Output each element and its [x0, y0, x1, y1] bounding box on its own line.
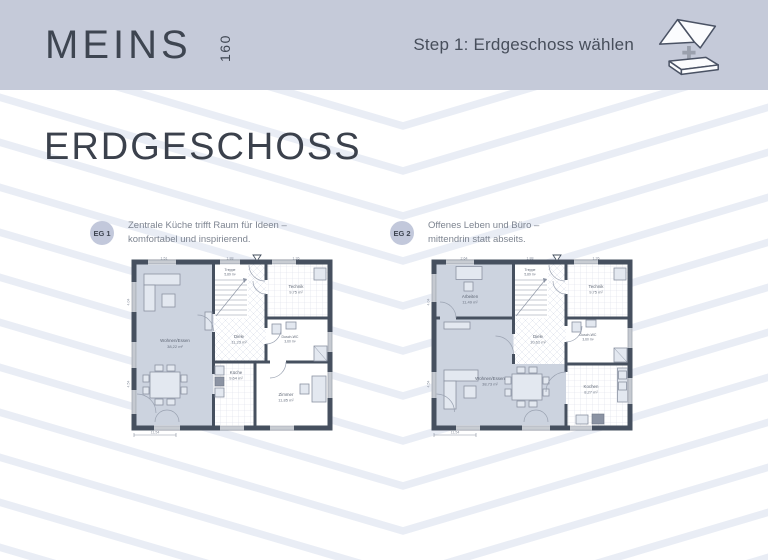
eg1-description: Zentrale Küche trifft Raum für Ideen –ko… [128, 219, 287, 248]
window-opening [154, 425, 180, 430]
eg2-floorplan[interactable]: Arbeiten 11,49 m² Treppe 5,89 m² Technik… [424, 254, 640, 442]
window-opening [220, 425, 244, 430]
svg-text:5,89 m²: 5,89 m² [524, 272, 536, 276]
window-opening [432, 372, 437, 398]
svg-text:4,04: 4,04 [127, 298, 131, 305]
window-opening [132, 390, 137, 414]
window-opening [132, 282, 137, 312]
svg-text:Diele: Diele [533, 334, 544, 339]
window-opening [328, 372, 333, 398]
svg-text:5,89 m²: 5,89 m² [224, 272, 236, 276]
svg-text:38,22 m²: 38,22 m² [167, 344, 183, 349]
eg2-badge: EG 2 [390, 221, 414, 245]
svg-text:11,23 m²: 11,23 m² [231, 339, 247, 344]
svg-text:11,85 m²: 11,85 m² [278, 397, 294, 402]
window-opening [132, 342, 137, 368]
svg-text:9,75 m²: 9,75 m² [589, 289, 603, 294]
window-opening [628, 328, 633, 348]
svg-text:Dusch-WC: Dusch-WC [282, 335, 299, 339]
svg-text:Küche: Küche [230, 370, 243, 375]
window-opening [570, 425, 592, 430]
floorplan-option-eg2[interactable]: EG 2 Offenes Leben und Büro –mittendrin … [390, 219, 690, 442]
svg-text:9,64 m²: 9,64 m² [229, 375, 243, 380]
svg-text:Treppe: Treppe [525, 268, 536, 272]
window-opening [432, 274, 437, 302]
window-opening [148, 259, 176, 264]
floorplan-options: EG 1 Zentrale Küche trifft Raum für Idee… [0, 219, 768, 442]
svg-text:Zimmer: Zimmer [279, 392, 294, 397]
window-opening [270, 425, 294, 430]
window-opening [456, 425, 480, 430]
svg-text:4,54: 4,54 [127, 380, 131, 387]
window-opening [628, 378, 633, 404]
svg-text:Technik: Technik [589, 284, 605, 289]
content-area: ERDGESCHOSS EG 1 Zentrale Küche trifft R… [0, 90, 768, 560]
eg1-floorplan[interactable]: Wohnen/Essen 38,22 m² Treppe 5,89 m² Tec… [124, 254, 340, 442]
window-opening [574, 259, 598, 264]
app-header: MEINS 160 Step 1: Erdgeschoss wählen [0, 0, 768, 90]
svg-text:Wohnen/Essen: Wohnen/Essen [160, 338, 190, 343]
house-add-floor-icon [654, 13, 722, 77]
svg-text:8,27 m²: 8,27 m² [584, 389, 598, 394]
svg-text:1,88: 1,88 [527, 256, 534, 260]
window-opening [446, 259, 474, 264]
eg2-description: Offenes Leben und Büro –mittendrin statt… [428, 219, 539, 248]
eg1-badge: EG 1 [90, 221, 114, 245]
svg-text:10,61 m²: 10,61 m² [530, 339, 546, 344]
svg-text:Kochen: Kochen [584, 384, 599, 389]
svg-text:4,04: 4,04 [427, 298, 431, 305]
svg-text:Arbeiten: Arbeiten [462, 294, 479, 299]
svg-text:11,49 m²: 11,49 m² [462, 299, 478, 304]
svg-text:3,60 m²: 3,60 m² [582, 337, 594, 341]
svg-text:11,54: 11,54 [151, 430, 160, 434]
window-opening [272, 259, 296, 264]
brand-name: MEINS [45, 23, 192, 68]
svg-text:9,75 m²: 9,75 m² [289, 289, 303, 294]
svg-text:Technik: Technik [289, 284, 305, 289]
meins-configurator-screen: MEINS 160 Step 1: Erdgeschoss wählen ERD… [0, 0, 768, 560]
step-title: Step 1: Erdgeschoss wählen [413, 35, 634, 55]
svg-text:Treppe: Treppe [225, 268, 236, 272]
window-opening [220, 259, 240, 264]
brand-logo: MEINS 160 [45, 0, 192, 90]
svg-text:Wohnen/Essen: Wohnen/Essen [475, 376, 505, 381]
svg-text:11,54: 11,54 [451, 430, 460, 434]
window-opening [328, 332, 333, 352]
window-opening [522, 425, 550, 430]
brand-number: 160 [217, 34, 233, 62]
svg-text:Dusch-WC: Dusch-WC [580, 333, 597, 337]
floorplan-option-eg1[interactable]: EG 1 Zentrale Küche trifft Raum für Idee… [90, 219, 390, 442]
page-title: ERDGESCHOSS [44, 126, 768, 169]
svg-text:3,60 m²: 3,60 m² [284, 339, 296, 343]
svg-text:4,54: 4,54 [427, 380, 431, 387]
svg-text:Diele: Diele [234, 334, 245, 339]
svg-text:38,73 m²: 38,73 m² [482, 381, 498, 386]
